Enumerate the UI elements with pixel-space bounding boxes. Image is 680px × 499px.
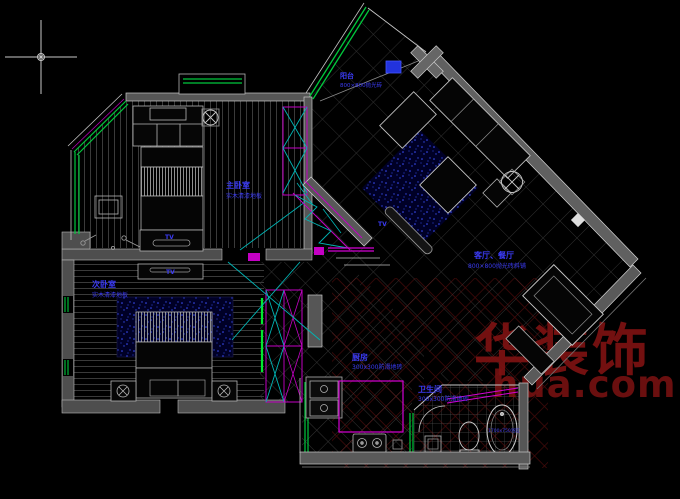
- kitchen-finish: 300x300防滑地砖: [352, 363, 402, 371]
- bedroom-b-bed: [136, 312, 212, 398]
- bedroom-b-nightstand-right: [212, 381, 237, 401]
- bottom-exterior-wall: [300, 452, 530, 464]
- bedroom-a-name: 主卧室: [226, 180, 250, 190]
- bedroom-a-tv-cabinet: TV: [140, 230, 203, 251]
- bedroom-a-window-bump: [179, 74, 245, 94]
- bedroom-a-tv-label: TV: [165, 234, 174, 241]
- gas-stove: [353, 434, 386, 453]
- bedroom-b-wardrobe: [266, 290, 302, 402]
- bedroom-b-dresser: TV: [138, 264, 203, 279]
- bedroom-a-right-wall: [304, 97, 312, 252]
- bathtub-label: 1700x750浴缸: [488, 427, 520, 434]
- bedroom-a-bottom-wall-right: [266, 249, 312, 260]
- living-finish: 800×800抛光砖斜铺: [468, 262, 526, 270]
- bedroom-b-finish: 实木清漆地板: [92, 291, 128, 299]
- bedroom-b-bottom-wall-left: [62, 400, 160, 413]
- balcony-finish: 800×800抛光砖: [340, 81, 383, 89]
- bedroom-a-bed: [141, 147, 203, 230]
- bedroom-b-tv-label: TV: [166, 269, 175, 276]
- corridor-wall: [308, 295, 322, 347]
- kitchen-name: 厨房: [352, 352, 368, 362]
- cad-floorplan-viewport: 华装饰 hua.com: [0, 0, 680, 499]
- bedroom-b-left-wall: [62, 260, 74, 407]
- bedroom-b-name: 次卧室: [92, 279, 116, 289]
- living-tv-label: TV: [378, 221, 387, 228]
- bathroom-name: 卫生间: [418, 384, 442, 394]
- crosshair-cursor[interactable]: [5, 20, 77, 94]
- balcony-name: 阳台: [340, 71, 354, 80]
- bedroom-a-wardrobe-top: [133, 106, 203, 146]
- balcony-marker-box: [386, 61, 401, 73]
- bedroom-a-finish: 实木清漆地板: [226, 192, 262, 200]
- bedroom-b-nightstand-left: [111, 381, 136, 401]
- kitchen-sink: [306, 377, 342, 418]
- bathroom-finish: 300x300防滑地砖: [418, 395, 468, 403]
- living-name: 客厅、餐厅: [473, 250, 514, 260]
- floorplan-drawing: 华装饰 hua.com: [0, 0, 680, 499]
